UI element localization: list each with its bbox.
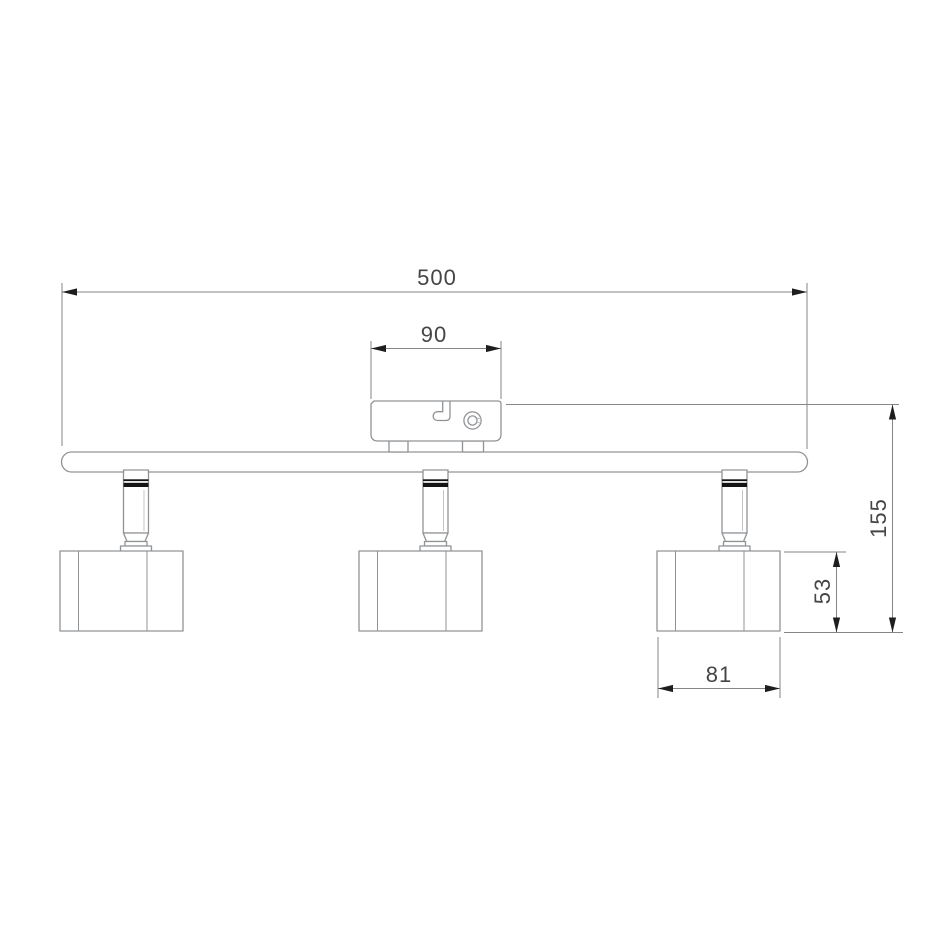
spotlight-bar-dimension-drawing: 500 90 155 53 81 [0,0,933,933]
dimension-head-width: 81 [658,637,780,698]
arrow-left-icon [62,288,77,295]
dimension-drawing-canvas: 500 90 155 53 81 [0,0,933,933]
canopy-foot-left [389,441,408,452]
arrow-left-icon [371,345,386,352]
dimension-head-height: 53 [784,552,846,633]
dimension-label-overall-width: 500 [417,265,457,290]
arrow-up-icon [889,405,896,420]
arrow-right-icon [486,345,501,352]
spot-head-right [657,551,780,631]
dimension-label-head-height: 53 [810,578,835,604]
stem-left [121,470,152,552]
arrow-down-icon [833,618,840,633]
dimension-label-canopy-width: 90 [421,322,447,347]
dimension-label-head-width: 81 [706,662,732,687]
dimension-label-overall-height: 155 [866,498,891,538]
canopy-foot-right [463,441,484,452]
spot-head-center [359,551,482,631]
arrow-down-icon [889,618,896,633]
arrow-right-icon [792,288,807,295]
ceiling-bar [62,452,808,472]
dimension-canopy-width: 90 [371,322,501,399]
stem-center [420,470,451,552]
stem-right [719,470,750,552]
arrow-left-icon [658,685,673,692]
arrow-up-icon [833,552,840,567]
arrow-right-icon [765,685,780,692]
spot-head-left [60,551,183,631]
